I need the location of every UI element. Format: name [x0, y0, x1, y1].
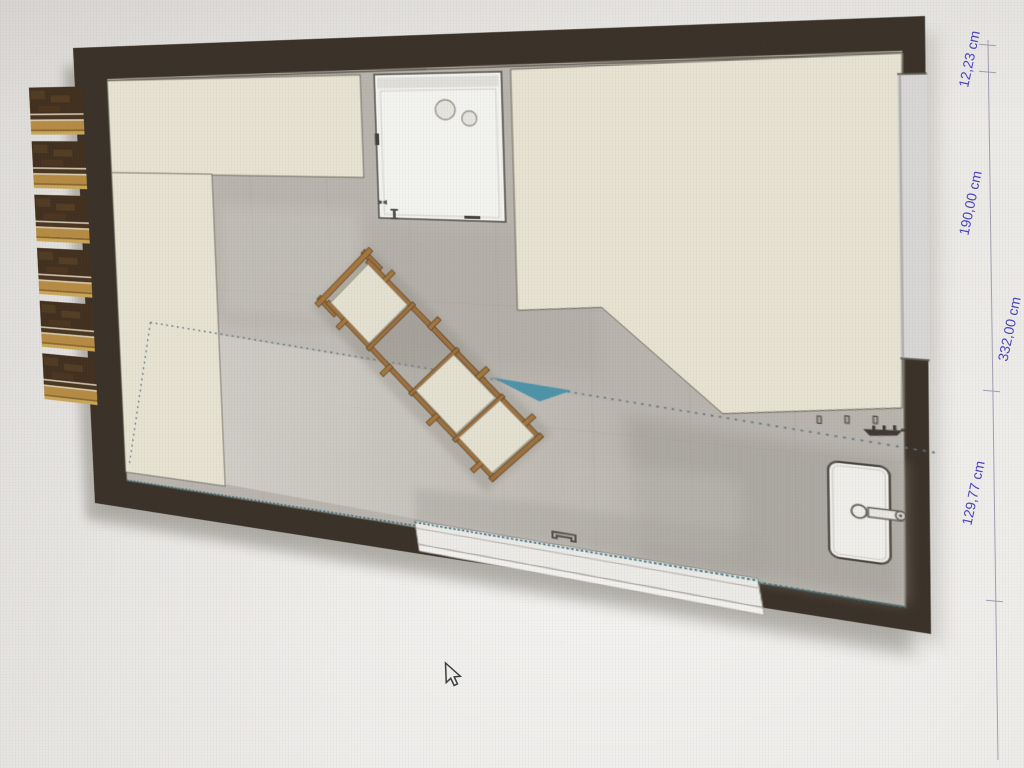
- svg-text:332,00 cm: 332,00 cm: [994, 295, 1023, 362]
- svg-text:129,77 cm: 129,77 cm: [958, 459, 987, 526]
- svg-text:12,23 cm: 12,23 cm: [955, 29, 983, 89]
- svg-text:190,00 cm: 190,00 cm: [955, 169, 984, 236]
